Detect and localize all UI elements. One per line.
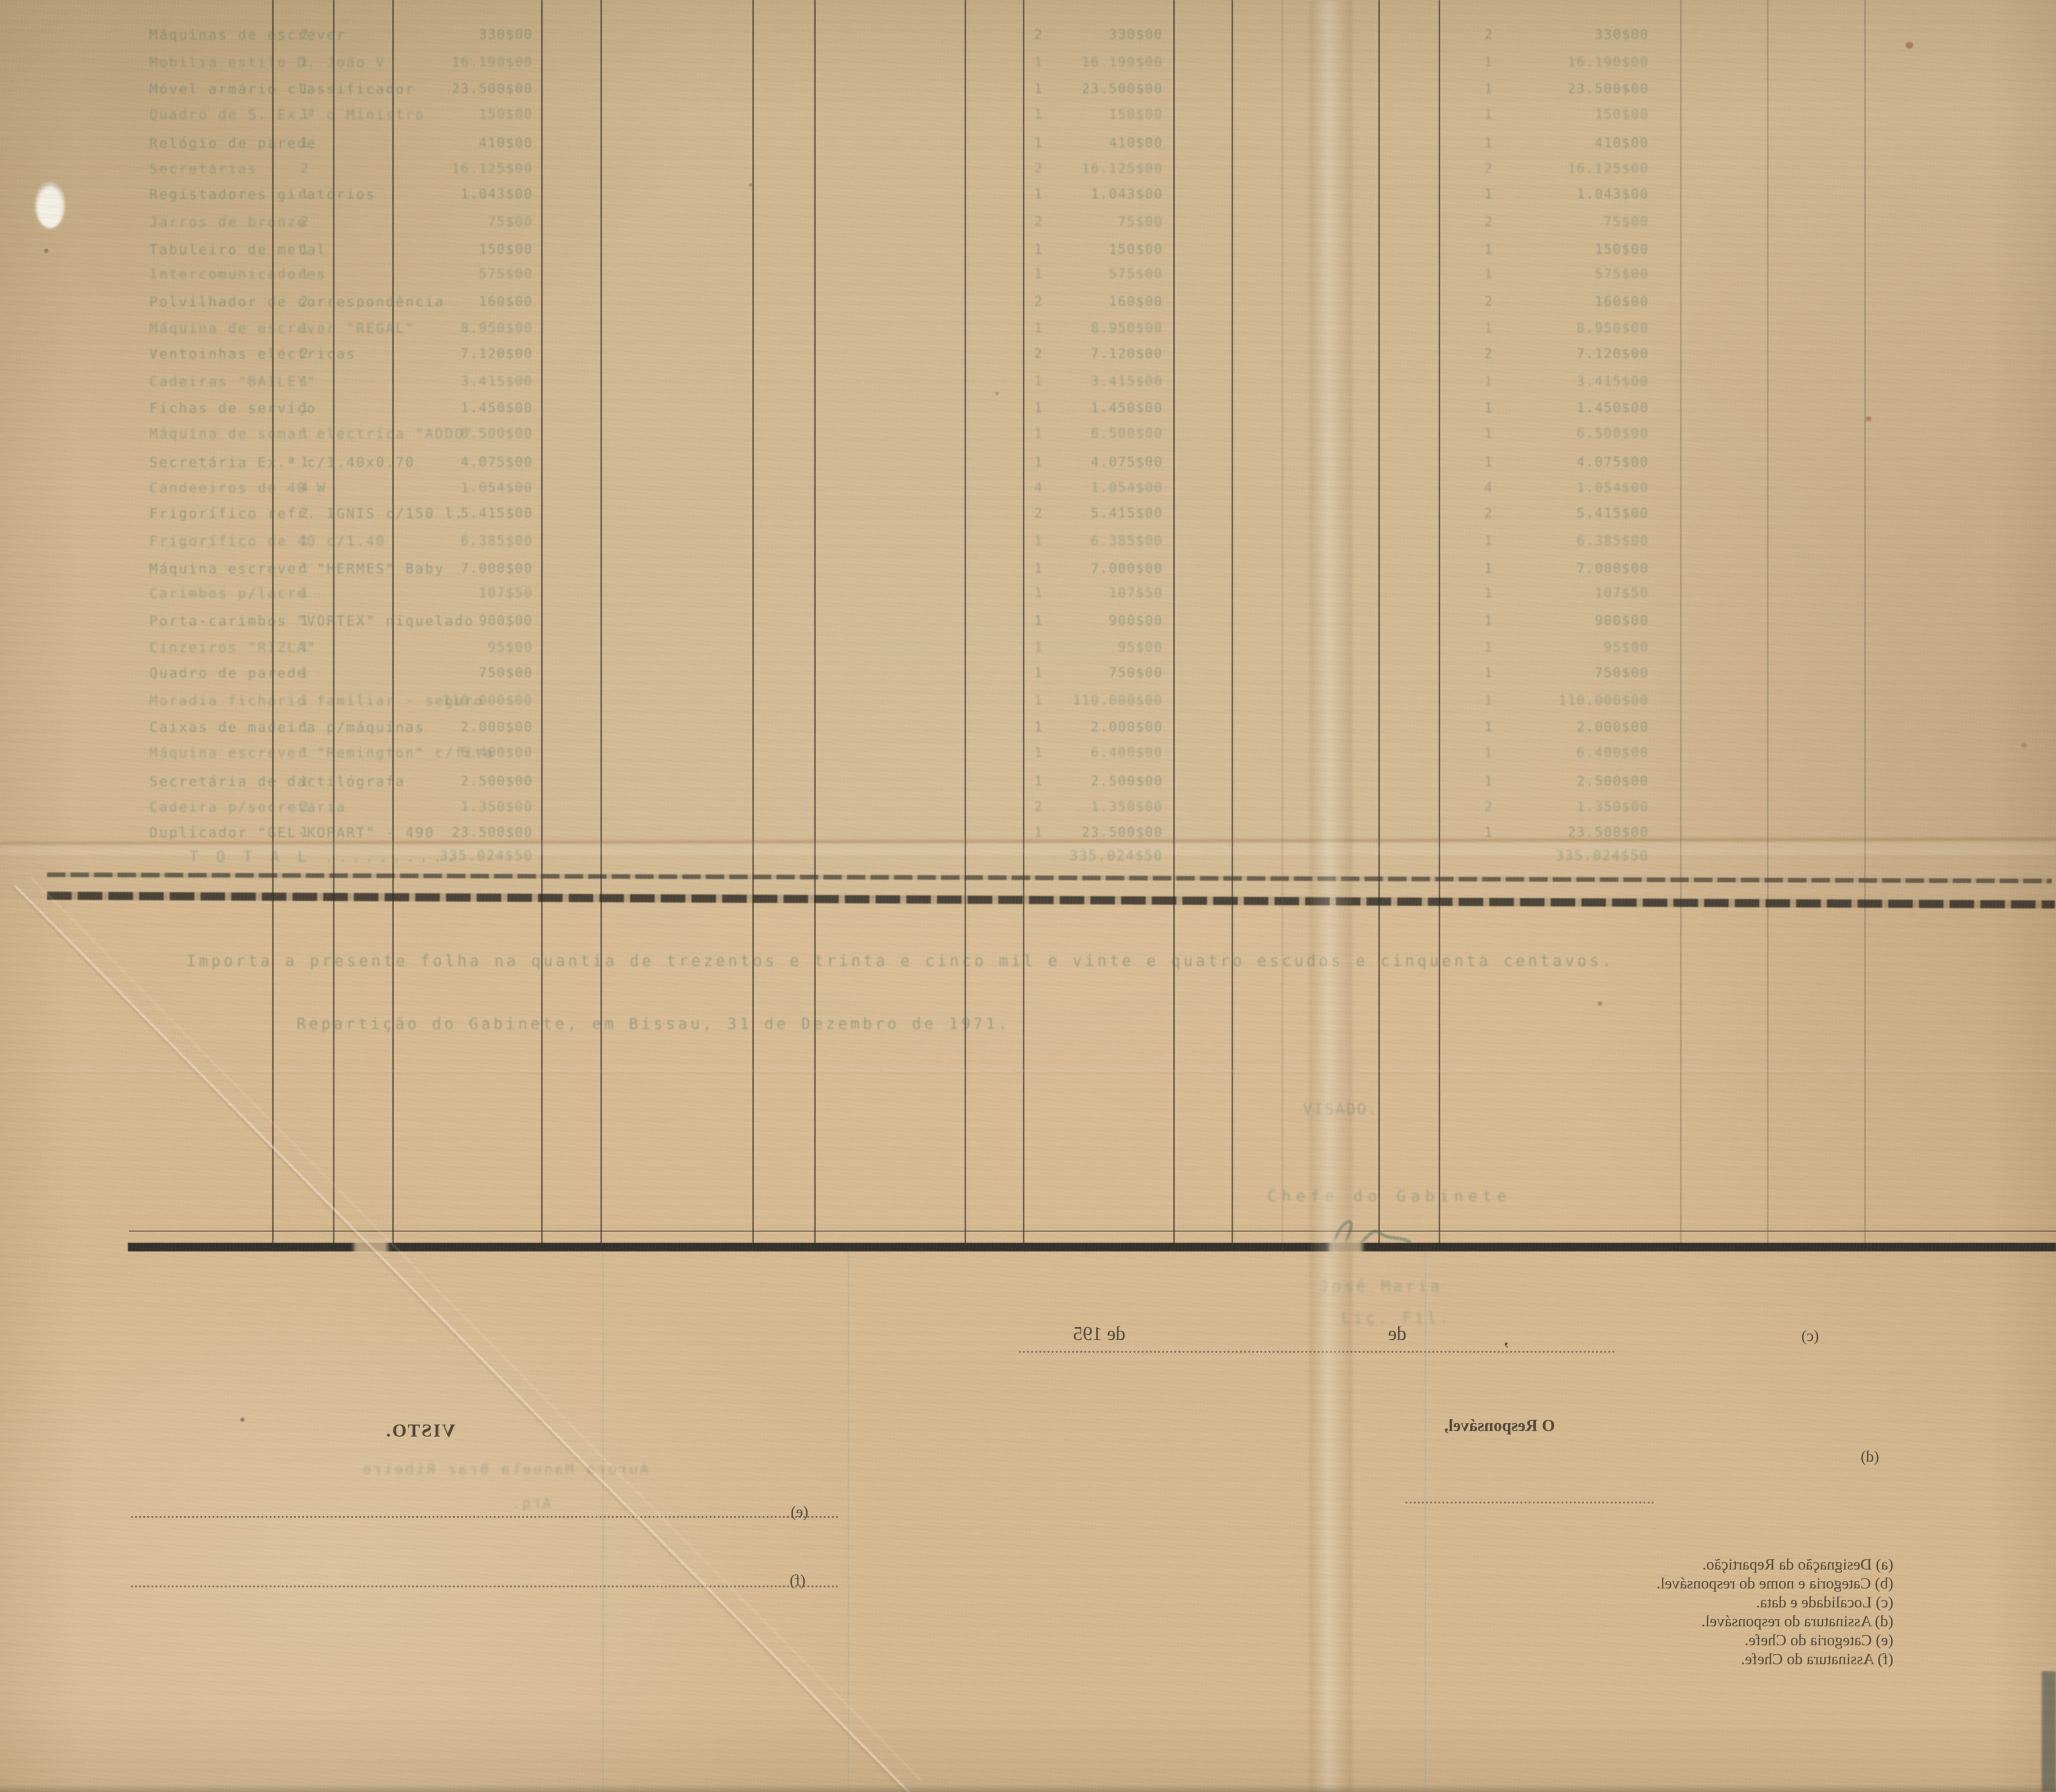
item-qty-col1: 1 [276, 533, 332, 549]
stain-5 [240, 1418, 244, 1422]
table-row: Registadores giratórios11.043$0011.043$0… [0, 187, 2056, 213]
table-row: Quadro de S. Ex.ª o Ministro1150$001150$… [0, 107, 2056, 133]
item-value-col2: 150$00 [997, 107, 1163, 122]
table-row: Fichas de serviço11.450$0011.450$0011.45… [0, 400, 2056, 427]
table-row: Relógio de parede1410$001410$001410$00 [0, 136, 2056, 162]
item-qty-col1: 1 [276, 613, 332, 629]
total-value-col3: 335.024$50 [1483, 848, 1649, 864]
item-value-col2: 1.450$00 [997, 400, 1163, 416]
stain-2 [1866, 416, 1871, 421]
item-value-col2: 1.350$00 [997, 799, 1163, 815]
table-row: Quadro de parede1750$001750$001750$00 [0, 665, 2056, 692]
item-qty-col1: 1 [276, 561, 332, 576]
verso-footnote-line: (c) Localidade e data. [1575, 1593, 1893, 1611]
item-value-col1: 75$00 [367, 214, 533, 230]
item-value-col3: 1.450$00 [1483, 400, 1649, 416]
item-value-col2: 23.500$00 [997, 81, 1163, 97]
verso-date-de: de [1388, 1323, 1406, 1345]
table-row: Máquinas de escrever2330$002330$002330$0… [0, 27, 2056, 54]
item-qty-col1: 2 [276, 506, 332, 521]
item-value-col3: 750$00 [1483, 665, 1649, 681]
diagonal-crease-2 [31, 878, 923, 1781]
item-value-col1: 7.000$00 [367, 561, 533, 576]
table-row: Candeeiros de 40 W41.054$0041.054$0041.0… [0, 480, 2056, 507]
item-value-col3: 150$00 [1483, 107, 1649, 122]
table-row: Tabuleiro de metal1150$001150$001150$00 [0, 242, 2056, 268]
item-qty-col1: 1 [276, 55, 332, 70]
item-value-col2: 107$50 [997, 586, 1163, 601]
item-qty-col1: 1 [276, 321, 332, 336]
item-value-col1: 6.400$00 [367, 745, 533, 760]
item-value-col3: 23.500$00 [1483, 825, 1649, 840]
item-value-col1: 575$00 [367, 266, 533, 282]
table-row: Secretária de dactilógrafa12.500$0012.50… [0, 774, 2056, 800]
item-value-col2: 8.950$00 [997, 321, 1163, 336]
item-value-col3: 330$00 [1483, 27, 1649, 42]
item-value-col3: 5.415$00 [1483, 506, 1649, 521]
table-row: Máquina escrever "HERMES" Baby17.000$001… [0, 561, 2056, 588]
item-value-col2: 2.500$00 [997, 774, 1163, 789]
item-value-col3: 6.500$00 [1483, 426, 1649, 441]
item-qty-col1: 1 [276, 720, 332, 735]
item-qty-col1: 2 [276, 161, 332, 176]
verso-rule-3 [1425, 1253, 1426, 1792]
verso-typed-title: Arq. [510, 1494, 551, 1511]
item-value-col1: 4.075$00 [367, 455, 533, 470]
item-value-col2: 95$00 [997, 640, 1163, 655]
verso-footnote-line: (b) Categoria e nome do responsável. [1575, 1574, 1893, 1593]
vertical-fold-band [1309, 0, 1352, 1792]
item-qty-col1: 1 [276, 374, 332, 389]
item-value-col1: 900$00 [367, 613, 533, 629]
stain-4 [749, 183, 752, 187]
scanned-inventory-sheet: Máquinas de escrever2330$002330$002330$0… [0, 0, 2056, 1792]
item-value-col1: 95$00 [367, 640, 533, 655]
thick-rule [128, 1243, 2056, 1251]
item-value-col2: 6.385$00 [997, 533, 1163, 549]
scan-edge-bottom [0, 1784, 2056, 1792]
item-value-col1: 150$00 [367, 242, 533, 257]
item-value-col3: 75$00 [1483, 214, 1649, 230]
item-value-col3: 16.190$00 [1483, 55, 1649, 70]
item-value-col2: 160$00 [997, 294, 1163, 309]
item-qty-col1: 2 [276, 346, 332, 362]
place-date-line: Repartição do Gabinete, em Bissau, 31 de… [297, 1015, 1011, 1033]
table-row: Jarros de bronze275$00275$00275$00 [0, 214, 2056, 241]
item-value-col2: 2.000$00 [997, 720, 1163, 735]
item-value-col2: 410$00 [997, 136, 1163, 151]
item-value-col2: 1.054$00 [997, 480, 1163, 496]
verso-rule-2 [848, 1253, 849, 1792]
verso-date-comma: , [1504, 1326, 1509, 1350]
item-value-col2: 575$00 [997, 266, 1163, 282]
table-row: Máquina de somar eléctrica "ADDO"16.500$… [0, 426, 2056, 453]
item-value-col2: 16.125$00 [997, 161, 1163, 176]
item-value-col1: 2.500$00 [367, 774, 533, 789]
item-qty-col1: 1 [276, 400, 332, 416]
verso-footnote-line: (e) Categoria do Chefe. [1575, 1630, 1893, 1649]
item-qty-col1: 2 [276, 294, 332, 309]
verso-line-e [131, 1516, 839, 1518]
table-row: Intercomunicadores1575$001575$001575$00 [0, 266, 2056, 293]
stain-1 [1906, 42, 1913, 49]
item-qty-col1: 1 [276, 107, 332, 122]
item-value-col2: 5.415$00 [997, 506, 1163, 521]
item-qty-col1: 1 [276, 187, 332, 202]
item-value-col1: 1.054$00 [367, 480, 533, 496]
table-row: Mobília estilo D. João V116.190$00116.19… [0, 55, 2056, 81]
item-value-col1: 1.450$00 [367, 400, 533, 416]
item-qty-col1: 2 [276, 27, 332, 42]
item-name: Frigorífico de 40 c/1.40 [149, 533, 386, 549]
item-qty-col1: 1 [276, 745, 332, 760]
item-value-col1: 107$50 [367, 586, 533, 601]
verso-marker-c: (c) [1801, 1327, 1819, 1345]
verso-typed-name: Aurora Manuela Braz Ribeiro [361, 1461, 649, 1477]
punch-hole [36, 183, 64, 228]
item-value-col3: 110.000$00 [1483, 693, 1649, 708]
table-row: Secretárias216.125$00216.125$00216.125$0… [0, 161, 2056, 188]
item-value-col1: 8.950$00 [367, 321, 533, 336]
item-value-col2: 110.000$00 [997, 693, 1163, 708]
item-value-col1: 23.500$00 [367, 825, 533, 840]
item-name: Secretárias [149, 161, 258, 177]
item-name: Mobília estilo D. João V [149, 55, 386, 71]
item-value-col3: 23.500$00 [1483, 81, 1649, 97]
item-value-col2: 23.500$00 [997, 825, 1163, 840]
item-value-col1: 16.190$00 [367, 55, 533, 70]
item-name: Registadores giratórios [149, 187, 376, 203]
item-qty-col1: 1 [276, 640, 332, 655]
item-value-col1: 160$00 [367, 294, 533, 309]
item-qty-col1: 1 [276, 693, 332, 708]
total-value-col2: 335.024$50 [997, 848, 1163, 864]
table-row: Polvilhador de correspondência2160$00216… [0, 294, 2056, 321]
item-value-col2: 1.043$00 [997, 187, 1163, 202]
item-qty-col1: 1 [276, 774, 332, 789]
item-qty-col1: 1 [276, 81, 332, 97]
verso-rule-1 [602, 1253, 604, 1792]
item-value-col1: 3.415$00 [367, 374, 533, 389]
item-qty-col1: 1 [276, 586, 332, 601]
table-row: Ventoinhas eléctricas27.120$0027.120$002… [0, 346, 2056, 373]
verso-marker-e: (e) [791, 1503, 808, 1521]
item-value-col2: 75$00 [997, 214, 1163, 230]
item-value-col3: 575$00 [1483, 266, 1649, 282]
verso-footnote-line: (d) Assinatura do responsável. [1575, 1611, 1893, 1630]
item-value-col1: 330$00 [367, 27, 533, 42]
item-value-col3: 160$00 [1483, 294, 1649, 309]
item-value-col1: 150$00 [367, 107, 533, 122]
item-value-col3: 6.400$00 [1483, 745, 1649, 760]
table-row: Máquina de escrever "REGAL"18.950$0018.9… [0, 321, 2056, 347]
scan-edge-right [2042, 1671, 2056, 1792]
verso-visto-label: VISTO. [385, 1420, 455, 1441]
item-value-col1: 1.043$00 [367, 187, 533, 202]
table-row: Frigorífico de 40 c/1.4016.385$0016.385$… [0, 533, 2056, 560]
verso-line-f [131, 1585, 839, 1587]
amount-sentence: Importa a presente folha na quantia de t… [187, 952, 1614, 970]
chief-title: Chefe do Gabinete [1267, 1188, 1511, 1205]
item-value-col1: 110.000$00 [367, 693, 533, 708]
item-value-col1: 7.120$00 [367, 346, 533, 362]
item-value-col2: 900$00 [997, 613, 1163, 629]
item-value-col3: 1.043$00 [1483, 187, 1649, 202]
item-value-col2: 6.500$00 [997, 426, 1163, 441]
item-value-col3: 1.054$00 [1483, 480, 1649, 496]
item-qty-col1: 2 [276, 214, 332, 230]
item-qty-col1: 1 [276, 266, 332, 282]
item-qty-col1: 1 [276, 242, 332, 257]
item-value-col3: 107$50 [1483, 586, 1649, 601]
table-row: Carimbos p/lacre1107$501107$501107$50 [0, 586, 2056, 612]
verso-marker-d: (d) [1861, 1447, 1879, 1466]
faint-crease-2 [0, 1070, 2056, 1072]
table-row: Frigorífico refr. IGNIS c/150 l.25.415$0… [0, 506, 2056, 532]
item-qty-col1: 1 [276, 136, 332, 151]
item-value-col3: 150$00 [1483, 242, 1649, 257]
verso-footnote-line: (a) Designação da Repartição. [1575, 1555, 1893, 1574]
item-qty-col1: 1 [276, 825, 332, 840]
table-row: Móvel armário classificador123.500$00123… [0, 81, 2056, 108]
item-value-col2: 6.400$00 [997, 745, 1163, 760]
item-value-col1: 5.415$00 [367, 506, 533, 521]
item-value-col1: 23.500$00 [367, 81, 533, 97]
item-value-col3: 6.385$00 [1483, 533, 1649, 549]
item-qty-col1: 1 [276, 455, 332, 470]
item-value-col2: 7.120$00 [997, 346, 1163, 362]
item-value-col1: 410$00 [367, 136, 533, 151]
table-row: Cadeira p/secretária21.350$0021.350$0021… [0, 799, 2056, 826]
verso-responsible-dotted-line [1405, 1502, 1654, 1504]
table-row: Secretária Ex.ª c/1.40x0.7014.075$0014.0… [0, 455, 2056, 481]
stain-8 [2021, 743, 2027, 748]
item-value-col3: 900$00 [1483, 613, 1649, 629]
item-value-col2: 150$00 [997, 242, 1163, 257]
item-value-col3: 2.000$00 [1483, 720, 1649, 735]
total-value-col1: 335.024$50 [367, 848, 533, 864]
item-value-col3: 1.350$00 [1483, 799, 1649, 815]
verso-responsible-label: O Responsável, [1444, 1417, 1555, 1436]
item-value-col3: 7.000$00 [1483, 561, 1649, 576]
thin-rule [129, 1230, 2056, 1232]
table-row: Moradia fichário familiar - seguro1110.0… [0, 693, 2056, 720]
item-value-col1: 1.350$00 [367, 799, 533, 815]
stain-6 [995, 392, 999, 395]
item-value-col3: 7.120$00 [1483, 346, 1649, 362]
item-qty-col1: 2 [276, 799, 332, 815]
item-value-col1: 6.385$00 [367, 533, 533, 549]
item-qty-col1: 1 [276, 426, 332, 441]
table-row: Máquina escrever "Remington" c/fita16.40… [0, 745, 2056, 772]
item-value-col3: 16.125$00 [1483, 161, 1649, 176]
item-value-col3: 410$00 [1483, 136, 1649, 151]
item-value-col3: 4.075$00 [1483, 455, 1649, 470]
item-value-col3: 2.500$00 [1483, 774, 1649, 789]
item-value-col1: 750$00 [367, 665, 533, 681]
item-value-col1: 16.125$00 [367, 161, 533, 176]
table-row: Cadeiras "BAILEY"13.415$0013.415$0013.41… [0, 374, 2056, 400]
item-value-col2: 3.415$00 [997, 374, 1163, 389]
item-value-col1: 6.500$00 [367, 426, 533, 441]
verso-date-de195: de 195 [1073, 1323, 1125, 1345]
item-value-col2: 7.000$00 [997, 561, 1163, 576]
stain-3 [1598, 1001, 1602, 1006]
item-qty-col1: 4 [276, 480, 332, 496]
item-value-col3: 95$00 [1483, 640, 1649, 655]
item-value-col1: 2.000$00 [367, 720, 533, 735]
table-total-row: T O T A L .......... 335.024$50 335.024$… [0, 848, 2056, 875]
item-value-col2: 16.190$00 [997, 55, 1163, 70]
item-value-col2: 750$00 [997, 665, 1163, 681]
item-value-col3: 8.950$00 [1483, 321, 1649, 336]
item-qty-col1: 1 [276, 665, 332, 681]
vertical-fold-edge [1282, 0, 1283, 1253]
table-row: Cinzeiros "RIZLA"195$00195$00195$00 [0, 640, 2056, 666]
stain-7 [44, 249, 49, 253]
table-row: Porta-carimbos "VORTEX" niquelado1900$00… [0, 613, 2056, 640]
item-value-col2: 4.075$00 [997, 455, 1163, 470]
table-row: Caixas de madeira p/máquinas12.000$0012.… [0, 720, 2056, 746]
item-value-col2: 330$00 [997, 27, 1163, 42]
item-value-col3: 3.415$00 [1483, 374, 1649, 389]
verso-footnotes: (a) Designação da Repartição.(b) Categor… [1575, 1555, 1893, 1668]
verso-footnote-line: (f) Assinatura do Chefe. [1575, 1649, 1893, 1668]
